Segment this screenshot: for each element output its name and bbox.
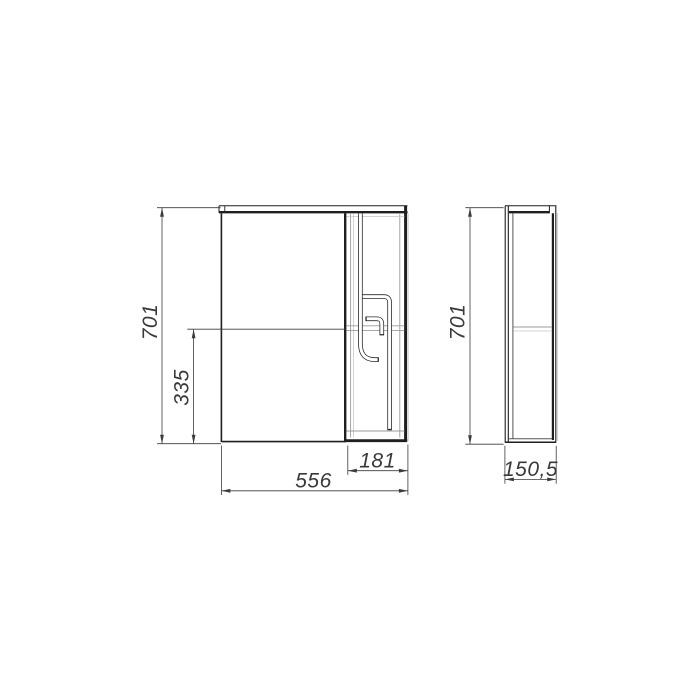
arrow-up: [160, 208, 164, 217]
front-view: [219, 206, 408, 442]
arrow-right: [399, 469, 408, 473]
dim-label-depth: 150,5: [503, 458, 558, 481]
dim-door-width: 181: [348, 446, 408, 475]
front-top-panel: [219, 206, 408, 213]
dim-side-height: 701: [447, 208, 504, 445]
decor-hook-long-fill: [362, 297, 390, 429]
arrow-down: [192, 435, 196, 444]
decor-hook-short-outline: [365, 319, 381, 336]
decor-main-tube-outline: [360, 214, 379, 360]
arrow-up: [192, 329, 196, 338]
arrow-left: [221, 489, 230, 493]
dim-side-depth: 150,5: [503, 446, 558, 484]
dimensions: 701 335 556 181: [139, 208, 558, 495]
dim-front-height: 701: [139, 208, 221, 444]
dim-label-partial-height: 335: [171, 369, 194, 406]
arrow-down: [160, 435, 164, 444]
cabinet-dimension-drawing: 701 335 556 181: [0, 0, 700, 700]
door-handle-decor: [360, 214, 389, 431]
side-view: [505, 206, 558, 443]
technical-drawing-page: 701 335 556 181: [0, 0, 700, 700]
arrow-right: [399, 489, 408, 493]
dim-label-side-height: 701: [447, 304, 470, 341]
arrow-up: [468, 208, 472, 217]
dim-label-door-width: 181: [359, 450, 396, 473]
dim-label-front-height: 701: [139, 304, 162, 341]
arrow-left: [348, 469, 357, 473]
arrow-down: [468, 435, 472, 444]
dim-label-width: 556: [295, 470, 332, 493]
front-door-frame: [344, 213, 407, 441]
decor-main-tube-fill: [360, 214, 377, 360]
dim-front-partial-height: 335: [171, 329, 346, 444]
